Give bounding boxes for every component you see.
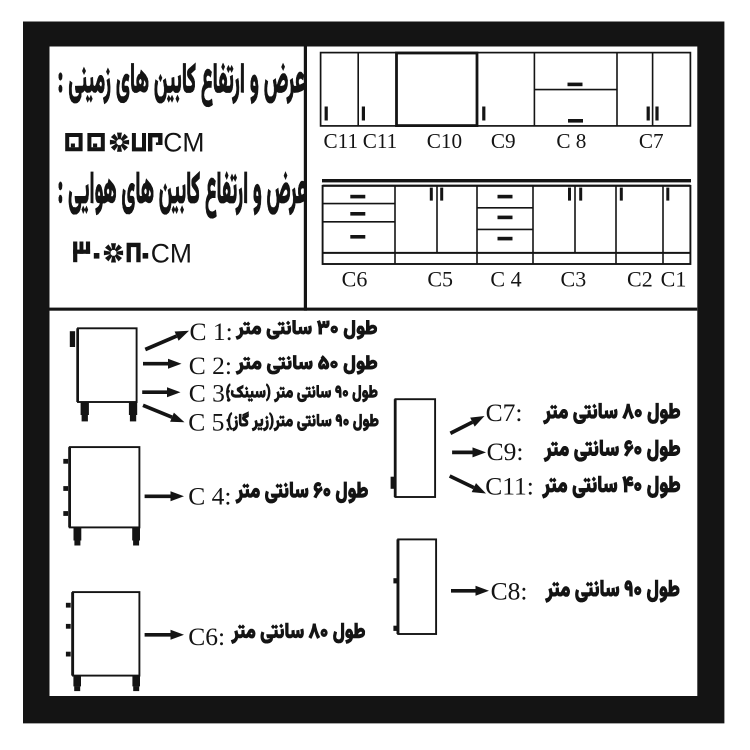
svg-text:C9:: C9: xyxy=(487,437,524,466)
svg-text:C11:: C11: xyxy=(485,471,534,500)
svg-text:C7:: C7: xyxy=(486,398,523,427)
svg-text:C 2:: C 2: xyxy=(189,351,232,380)
svg-text:C1: C1 xyxy=(661,267,687,292)
svg-text:C 4:: C 4: xyxy=(188,482,231,511)
svg-text:C10: C10 xyxy=(427,129,462,153)
svg-text:C9: C9 xyxy=(491,129,516,153)
svg-text:C11: C11 xyxy=(363,129,398,153)
svg-text:C2: C2 xyxy=(627,267,653,292)
svg-text:C 4: C 4 xyxy=(490,267,521,292)
svg-text:C5: C5 xyxy=(427,267,453,292)
svg-text:C 3:: C 3: xyxy=(189,378,232,407)
svg-text:CM: CM xyxy=(163,127,204,157)
svg-text:C11: C11 xyxy=(324,129,359,153)
svg-text:C6: C6 xyxy=(342,267,368,292)
svg-text:C 8: C 8 xyxy=(556,129,586,153)
svg-text:C3: C3 xyxy=(561,267,587,292)
svg-text:C 5:: C 5: xyxy=(188,407,231,436)
svg-text:CM: CM xyxy=(151,238,192,268)
svg-text:C6:: C6: xyxy=(188,622,225,651)
svg-text:C7: C7 xyxy=(639,129,664,153)
svg-text:C8:: C8: xyxy=(491,576,528,605)
svg-text:C 1:: C 1: xyxy=(190,317,233,346)
